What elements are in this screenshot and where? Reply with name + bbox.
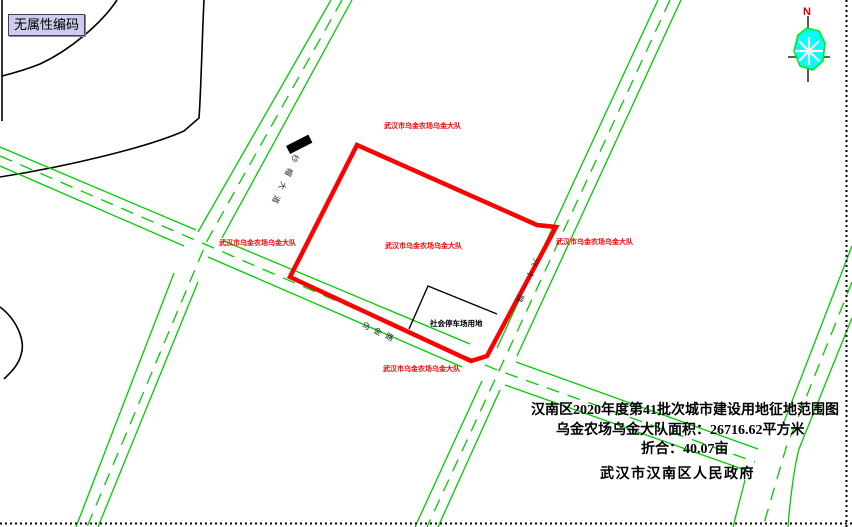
map-authority-line: 武汉市汉南区人民政府 [600,463,755,483]
map-title: 汉南区2020年度第41批次城市建设用地征地范围图 [531,399,839,419]
right-road-name: 兴十一路 [512,257,542,309]
parcel-owner-label-bottom: 武汉市乌金农场乌金大队 [383,366,460,374]
left-road-name: 纱帽大道 [267,153,301,212]
compass: N [788,6,830,82]
parcel-owner-label-center: 武汉市乌金农场乌金大队 [385,243,462,251]
map-area-mu-line: 折合：40.07亩 [641,438,729,458]
parking-area-label: 社会停车场用地 [430,318,483,329]
attribute-tooltip: 无属性编码 [8,14,85,36]
map-viewport[interactable]: 纱帽大道 乌金路 兴十一路 N 无属性编码 武汉市乌金农场乌金大队 武汉市乌金农… [0,0,852,527]
compass-rays [795,37,823,65]
parcel-owner-label-right: 武汉市乌金农场乌金大队 [556,239,633,247]
parcel-owner-label-top: 武汉市乌金农场乌金大队 [384,123,461,131]
north-label: N [803,6,811,18]
bridge-symbol [286,135,312,154]
parcel-outline[interactable] [290,145,556,361]
map-area-line: 乌金农场乌金大队面积：26716.62平方米 [556,419,805,439]
parcel-owner-label-left: 武汉市乌金农场乌金大队 [219,240,296,248]
